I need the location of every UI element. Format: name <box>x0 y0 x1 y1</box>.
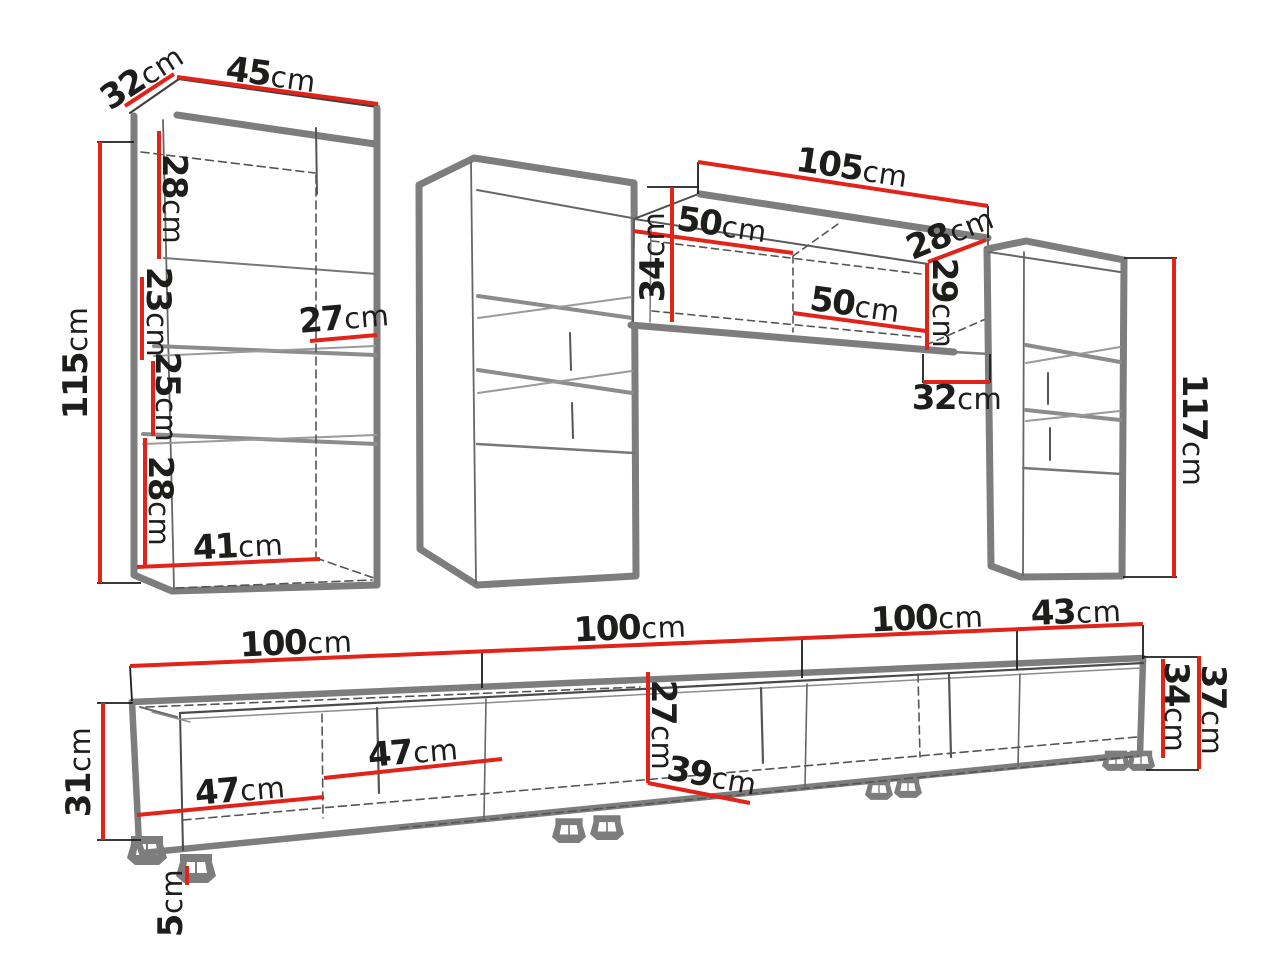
dim-tv-seg3: 100cm <box>870 599 984 638</box>
middle-cabinet-drawing <box>419 158 636 585</box>
right-cabinet-drawing <box>987 241 1124 577</box>
dim-right-cab-height: 117cm <box>1177 374 1211 487</box>
dim-tv-height: 31cm <box>62 727 96 818</box>
dim-tv-leg-height: 5cm <box>154 869 188 937</box>
dim-tv-door1: 47cm <box>193 769 286 811</box>
furniture-diagram: 32cm 45cm 115cm 28cm 23cm 25cm 28cm 27cm… <box>0 0 1280 960</box>
dim-tv-right-inner-height: 34cm <box>1159 662 1193 753</box>
diagram-linework <box>0 0 1280 960</box>
dim-left-cab-sec4: 28cm <box>143 456 177 547</box>
dim-tv-seg4: 43cm <box>1030 593 1122 631</box>
dim-left-cab-sec1: 28cm <box>157 154 191 245</box>
dim-left-cab-inner-width: 41cm <box>192 527 284 566</box>
dim-wall-cab-right-height: 29cm <box>927 258 961 349</box>
dim-left-cab-sec3: 25cm <box>150 352 184 443</box>
dim-tv-seg1: 100cm <box>239 624 353 663</box>
dim-left-cab-height: 115cm <box>59 307 93 420</box>
dim-tv-right-height: 37cm <box>1196 665 1230 756</box>
dim-left-cab-shelf-depth: 27cm <box>297 297 390 339</box>
dim-wall-cab-height: 34cm <box>636 212 670 303</box>
dim-tv-seg2: 100cm <box>573 609 687 648</box>
dim-left-cab-sec2: 23cm <box>141 267 175 358</box>
dim-wall-cab-offset: 32cm <box>912 381 1003 415</box>
dim-tv-door2: 47cm <box>366 731 459 773</box>
